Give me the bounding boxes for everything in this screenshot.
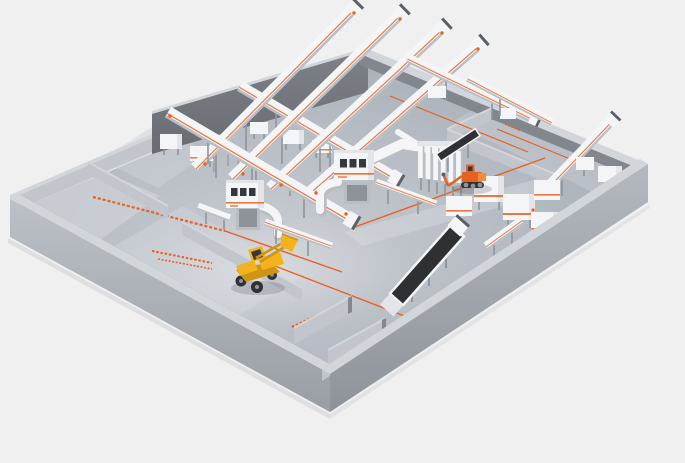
plant-render: [0, 0, 685, 463]
machine-box: [446, 196, 472, 216]
screenshot-plant-render: [0, 0, 685, 463]
machine-trim: [446, 210, 472, 212]
